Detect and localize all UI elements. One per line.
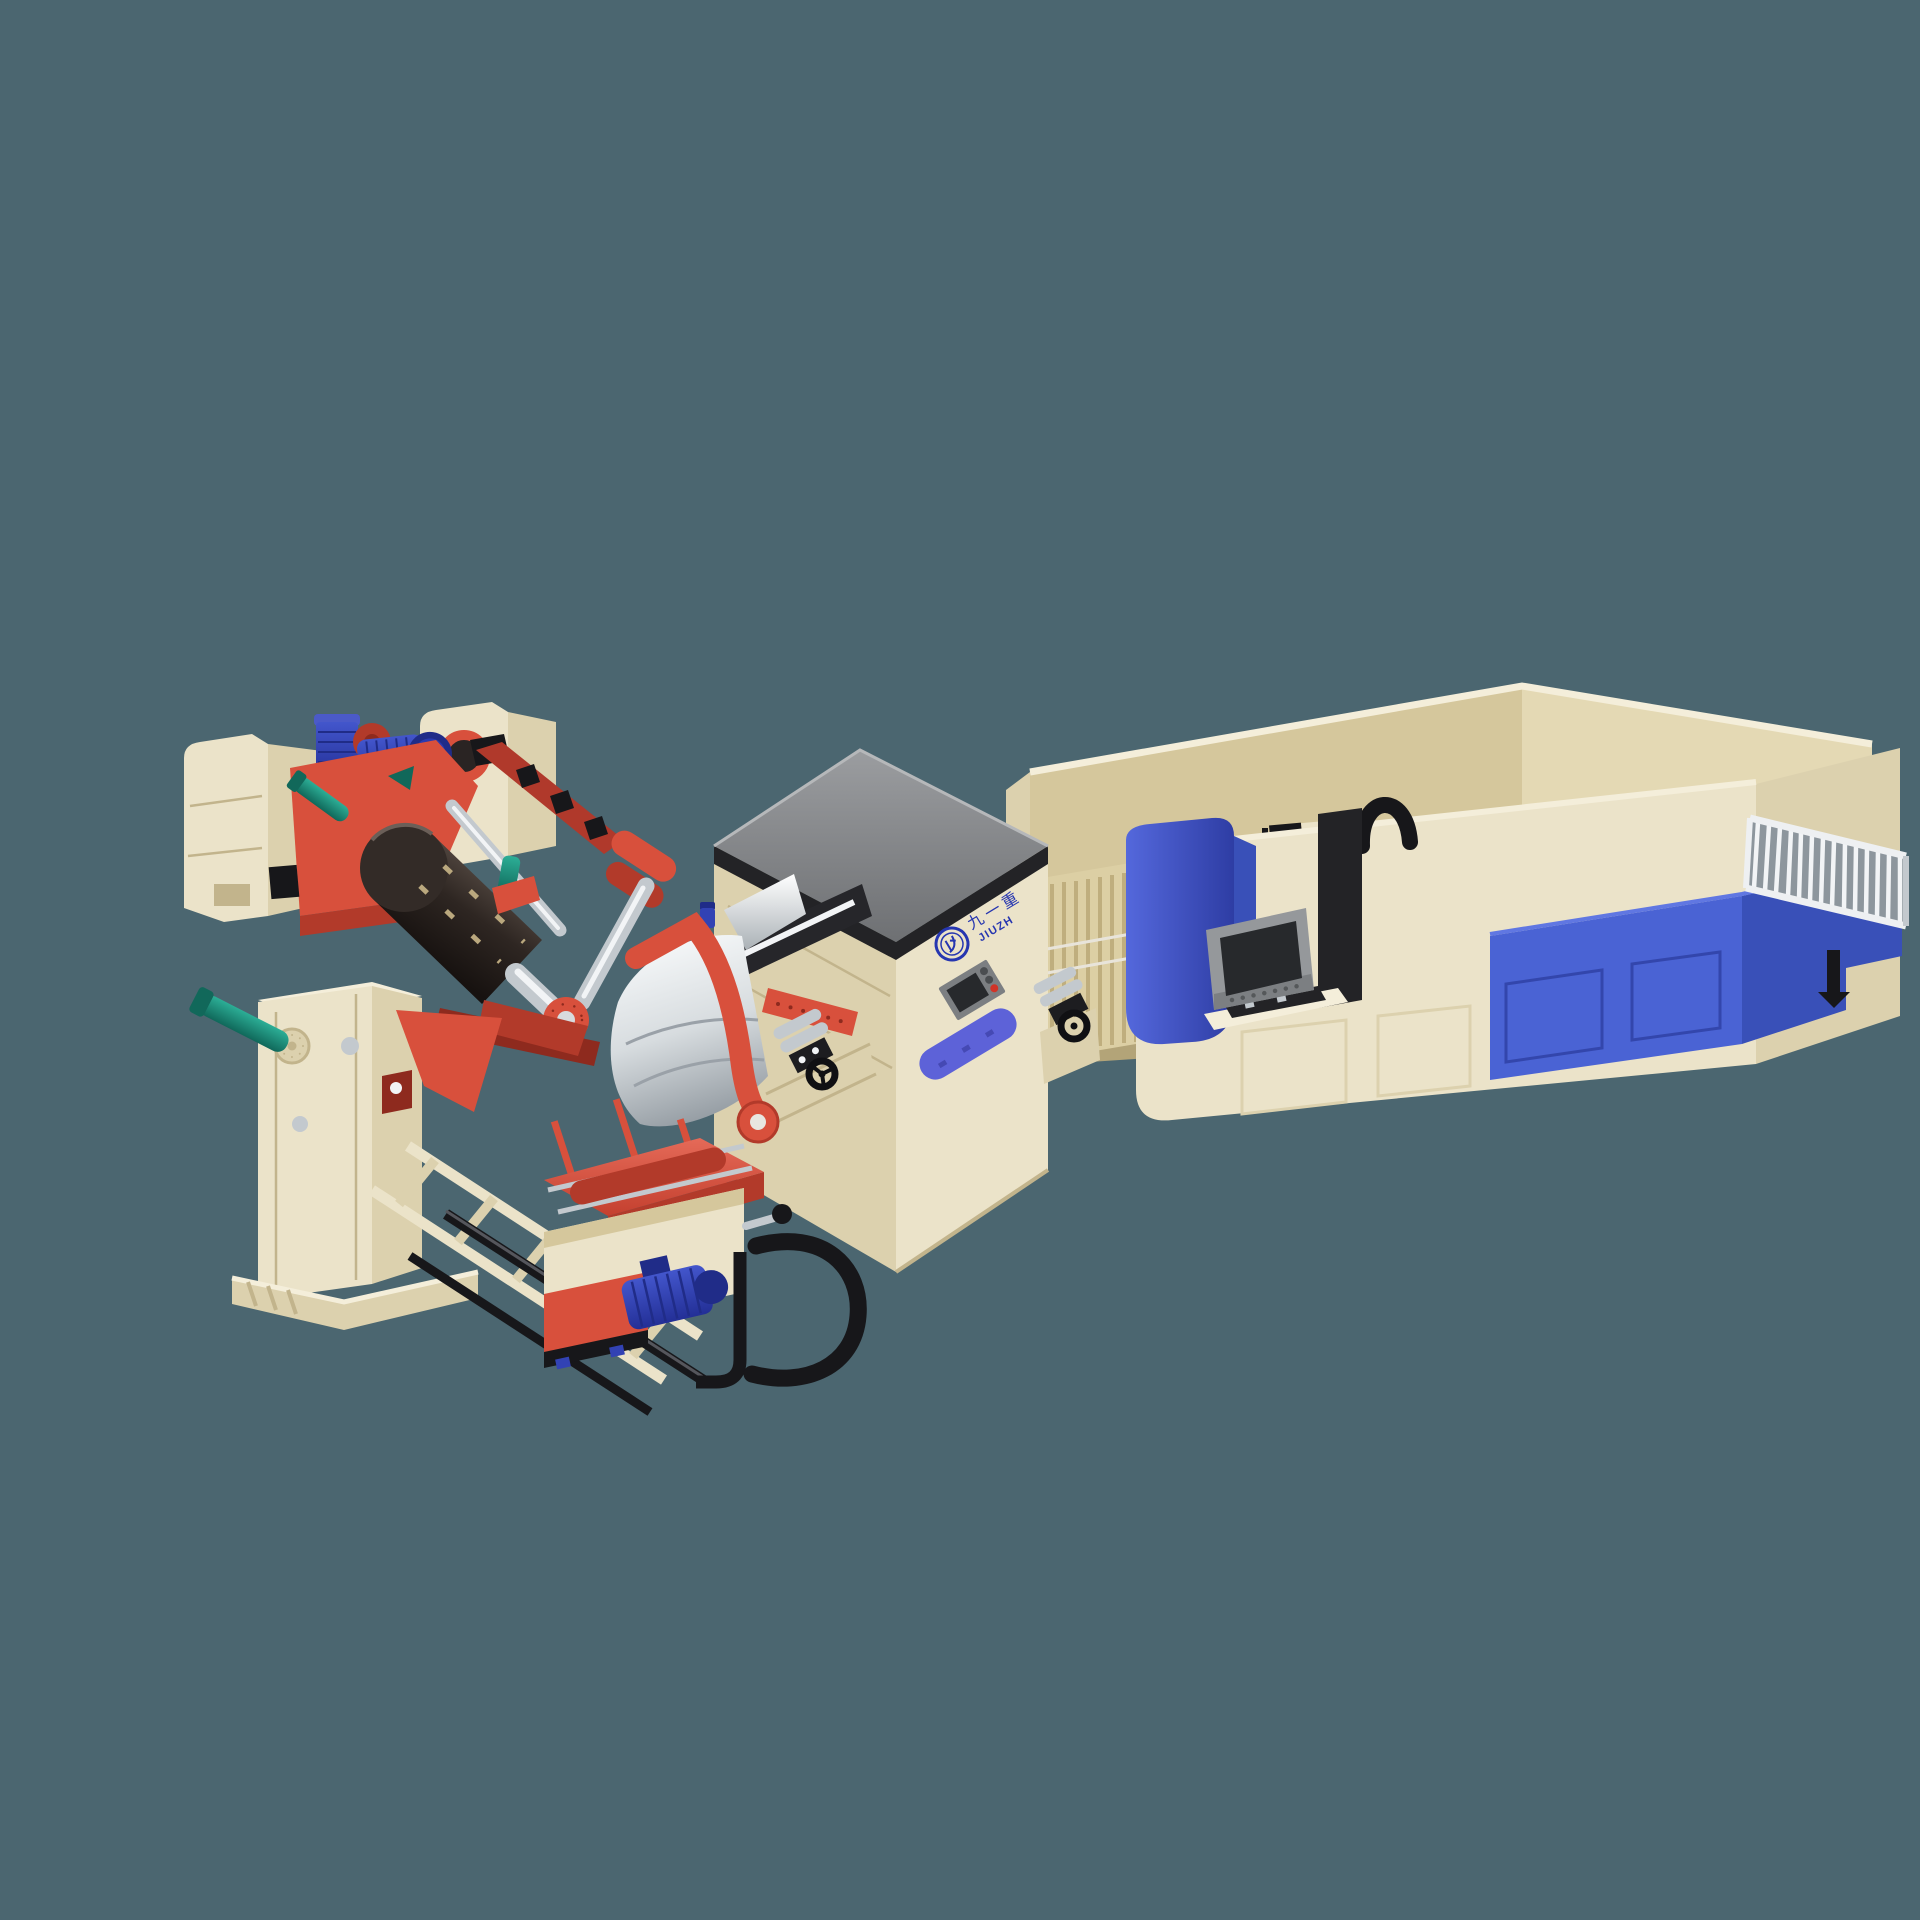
front-wall-stripe	[1318, 808, 1362, 1008]
junction-box	[269, 865, 300, 899]
machine-line-illustration: 九一重 JIUZH	[0, 0, 1920, 1920]
pedestal-port-pin	[390, 1082, 402, 1094]
conveyor-left-edge	[1746, 818, 1750, 888]
exit-handwheel-hub	[1071, 1023, 1078, 1030]
pedestal-pin-2	[292, 1116, 308, 1132]
laser-cutting-machine	[1006, 686, 1906, 1120]
car-knob	[772, 1204, 792, 1224]
pedestal-flange-hole	[288, 1042, 297, 1051]
pedestal-pin-1	[341, 1037, 359, 1055]
product-render: 九一重 JIUZH	[0, 0, 1920, 1920]
left-stand-notch	[214, 884, 250, 906]
conveyor-foot-leg	[1827, 950, 1840, 994]
arm-pivot-hub	[750, 1114, 766, 1130]
